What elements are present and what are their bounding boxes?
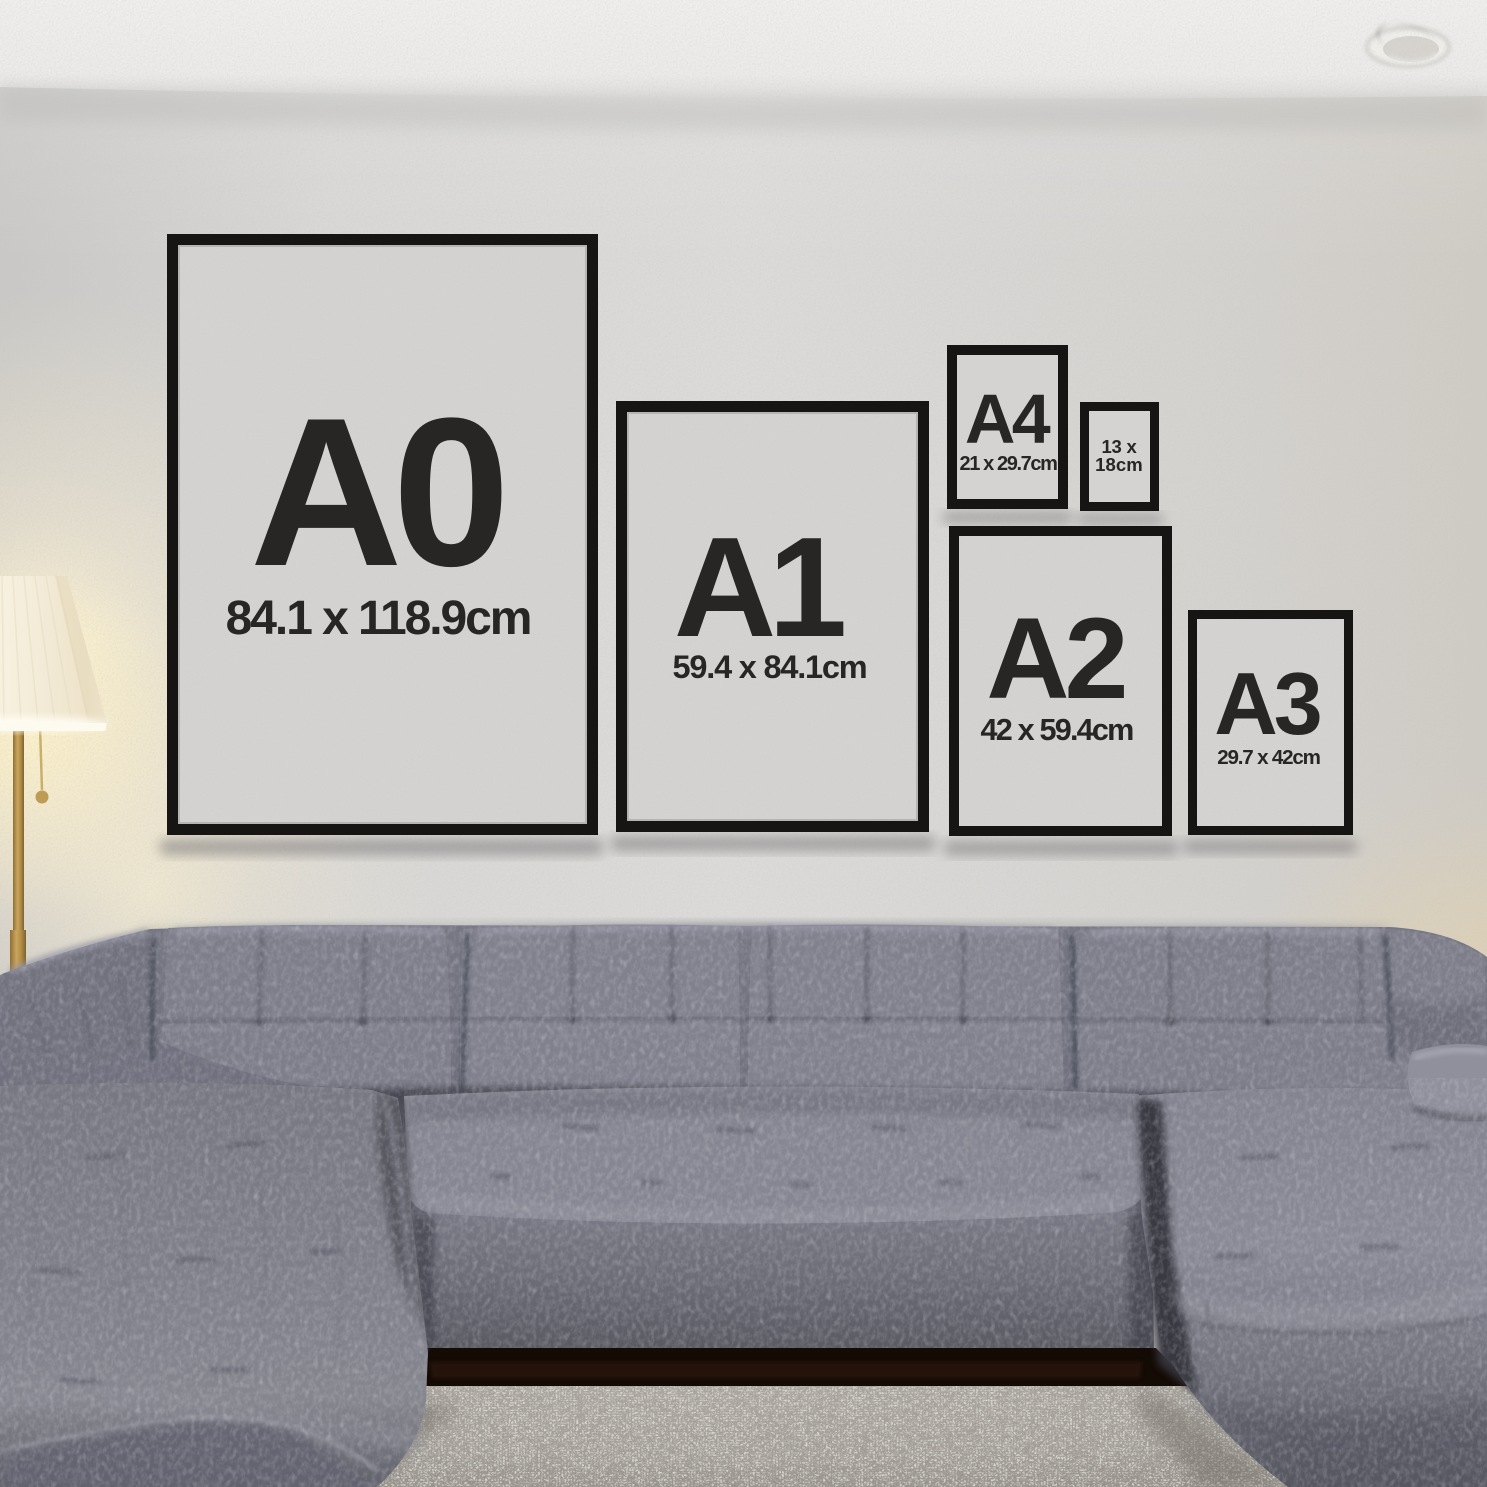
svg-text:A4: A4	[965, 380, 1051, 458]
svg-text:A3: A3	[1214, 654, 1320, 753]
svg-text:18cm: 18cm	[1095, 454, 1143, 475]
svg-text:84.1 x 118.9cm: 84.1 x 118.9cm	[226, 592, 531, 645]
svg-text:29.7 x 42cm: 29.7 x 42cm	[1217, 746, 1320, 769]
svg-text:A1: A1	[674, 508, 845, 667]
svg-text:21 x 29.7cm: 21 x 29.7cm	[960, 453, 1058, 475]
svg-text:A0: A0	[250, 374, 502, 610]
svg-text:A2: A2	[986, 595, 1124, 723]
svg-text:59.4 x 84.1cm: 59.4 x 84.1cm	[672, 649, 866, 685]
svg-text:42 x 59.4cm: 42 x 59.4cm	[980, 713, 1133, 747]
